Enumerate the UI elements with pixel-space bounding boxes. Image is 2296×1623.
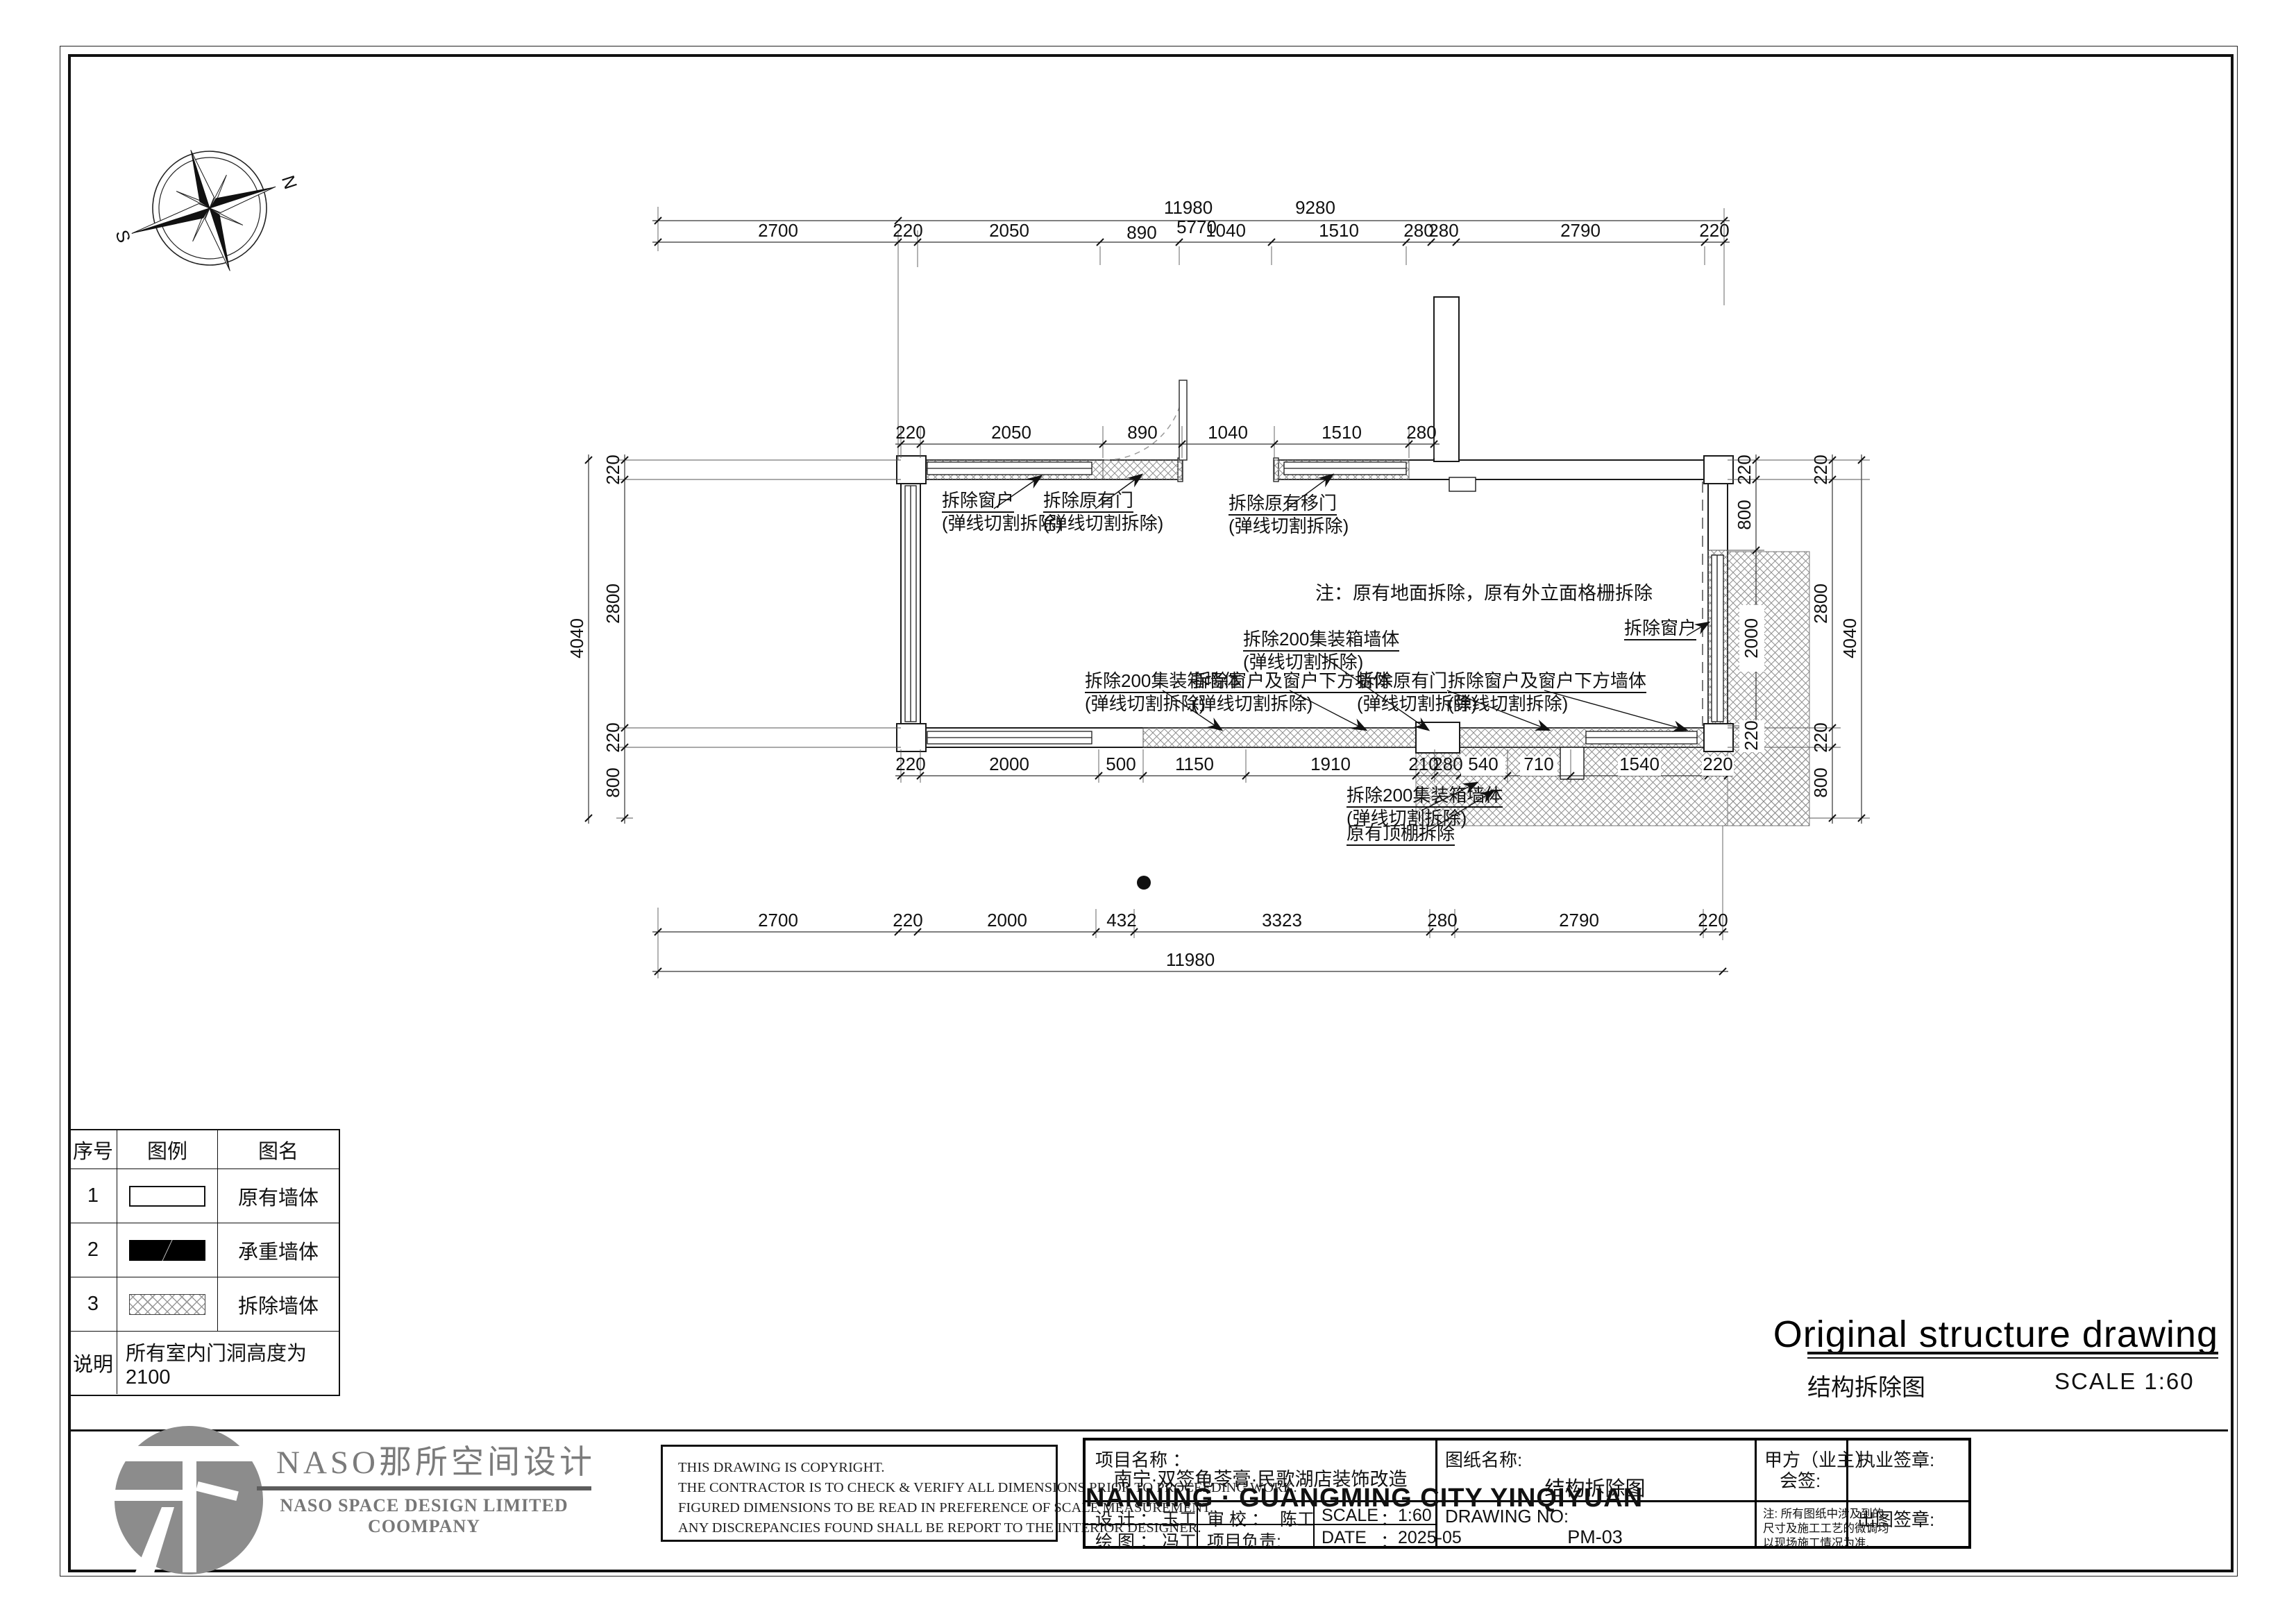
dimension-ticks [585, 217, 1865, 975]
dimension-lines [589, 221, 1862, 971]
dim: 280 [1433, 754, 1462, 774]
sheetname-value: 结构拆除图 [1435, 1472, 1755, 1502]
date-colon: ： [1381, 1528, 1398, 1553]
legend-note-value: 所有室内门洞高度为2100 [117, 1332, 339, 1394]
dim: 220 [602, 454, 623, 484]
callout-demolish-door-top: 拆除原有门(弹线切割拆除) [1043, 490, 1163, 534]
dim-overall-top: 11980 [1164, 197, 1213, 218]
copyright-line: ANY DISCREPANCIES FOUND SHALL BE REPORT … [678, 1518, 1056, 1538]
draftsman-value: 冯工 [1162, 1528, 1197, 1553]
dim: 710 [1523, 754, 1553, 774]
draftsman-label: 绘 图 ： [1095, 1528, 1157, 1553]
dim: 890 [1126, 222, 1156, 243]
legend-header-no: 序号 [69, 1130, 117, 1169]
compass-north-label: N [278, 173, 301, 192]
dim: 220 [893, 220, 922, 241]
table-line [1755, 1441, 1757, 1546]
dim: 2700 [758, 910, 798, 931]
legend-header-name: 图名 [218, 1130, 339, 1169]
legend-row-no: 1 [69, 1169, 117, 1223]
dim: 2800 [602, 584, 623, 624]
dim: 280 [1428, 220, 1458, 241]
dim: 432 [1106, 910, 1136, 931]
practice-seal-label: 执业签章: [1857, 1446, 1934, 1472]
compass-icon: N S [94, 121, 320, 302]
callout-demolish-container-wall-mid: 拆除200集装箱墙体(弹线切割拆除) [1243, 629, 1399, 672]
drawingno-label: DRAWING NO: [1445, 1506, 1569, 1527]
dim: 2700 [758, 220, 798, 241]
dim: 220 [1810, 722, 1831, 752]
dim: 220 [1703, 754, 1732, 774]
legend-swatch-demolish [117, 1277, 218, 1332]
dim: 1510 [1322, 422, 1362, 443]
drawing-title-scale: SCALE 1:60 [2054, 1368, 2195, 1395]
dim: 220 [1734, 454, 1755, 484]
dim-top-9280: 9280 [1295, 197, 1335, 218]
copyright-line: FIGURED DIMENSIONS TO BE READ IN PREFERE… [678, 1498, 1056, 1518]
callout-demolish-container-wall-bottom: 拆除200集装箱墙体(弹线切割拆除) [1347, 785, 1503, 829]
designer-label: 设 计 ： [1095, 1506, 1157, 1531]
dim: 220 [893, 910, 922, 931]
titleblock-table: 项目名称 ： 南宁·双签龟苓膏·民歌湖店装饰改造 NANNING · GUANG… [1083, 1438, 1971, 1549]
callout-demolish-window-right: 拆除窗户 [1624, 618, 1696, 640]
dimension-extension-lines [616, 207, 1870, 978]
plan-drawing: N S [0, 0, 2296, 1623]
legend-row-name: 拆除墙体 [218, 1277, 339, 1332]
dim: 220 [895, 422, 925, 443]
dimension-labels: 11980 9280 2700 220 2050 890 5770 1040 1… [566, 197, 1860, 970]
issue-seal-label: 出图签章: [1857, 1506, 1934, 1531]
legend-row-name: 原有墙体 [218, 1169, 339, 1223]
legend-swatch-original [117, 1169, 218, 1223]
dim: 1040 [1208, 422, 1248, 443]
titlebar-separator [68, 1429, 2228, 1431]
dim: 800 [1734, 500, 1755, 529]
dim: 220 [1699, 220, 1729, 241]
logo-company-zh: NASO那所空间设计 [276, 1435, 596, 1483]
drawing-title: Original structure drawing [1669, 1313, 2218, 1356]
logo-company-en: NASO SPACE DESIGN LIMITED COOMPANY [257, 1495, 591, 1537]
dim: 220 [1741, 720, 1762, 750]
owner-countersign-label: 会签: [1780, 1467, 1821, 1493]
project-manager-label: 项目负责: [1207, 1528, 1281, 1553]
dim: 2000 [989, 754, 1029, 774]
dim: 890 [1127, 422, 1157, 443]
legend-row-no: 3 [69, 1277, 117, 1332]
dim: 220 [1698, 910, 1728, 931]
drawing-title-en: Original structure drawing [1773, 1314, 2218, 1355]
dim: 2000 [1741, 618, 1762, 658]
scale-colon: ： [1381, 1506, 1398, 1531]
dim: 4040 [566, 618, 587, 658]
drawingno-value: PM-03 [1435, 1527, 1755, 1548]
sheetname-label: 图纸名称: [1445, 1446, 1522, 1472]
dim: 280 [1427, 910, 1457, 931]
dim: 220 [1810, 454, 1831, 484]
dim: 280 [1406, 422, 1436, 443]
title-underline [1807, 1357, 2218, 1359]
dim: 220 [602, 722, 623, 752]
scale-label: SCALE [1322, 1506, 1378, 1526]
title-underline [1807, 1352, 2218, 1354]
dim: 800 [1810, 767, 1831, 797]
dim: 2050 [989, 220, 1029, 241]
dim: 2790 [1560, 220, 1601, 241]
callout-demolish-sliding-door: 拆除原有移门(弹线切割拆除) [1229, 493, 1349, 536]
dim: 3323 [1262, 910, 1302, 931]
dim: 1910 [1310, 754, 1351, 774]
dim: 1510 [1319, 220, 1359, 241]
dim: 2790 [1559, 910, 1599, 931]
designer-value: 玉工 [1162, 1506, 1197, 1531]
callout-demolish-ceiling: 原有顶棚拆除 [1347, 823, 1455, 846]
dim: 500 [1106, 754, 1136, 774]
dim: 1540 [1619, 754, 1660, 774]
checker-value: 陈工 [1280, 1506, 1315, 1531]
dim: 2000 [987, 910, 1027, 931]
legend-swatch-loadbearing [117, 1223, 218, 1277]
dim: 2050 [991, 422, 1031, 443]
black-dot-marker [1137, 876, 1151, 890]
plan-general-note: 注：原有地面拆除，原有外立面格栅拆除 [1315, 578, 1653, 605]
dim: 2800 [1810, 584, 1831, 624]
drawing-title-zh: 结构拆除图 [1807, 1368, 1925, 1402]
copyright-line: THIS DRAWING IS COPYRIGHT. [678, 1458, 1056, 1478]
compass-south-label: S [111, 228, 135, 246]
date-label: DATE [1322, 1528, 1367, 1548]
owner-note-line: 以现场施工情况为准. [1763, 1533, 1869, 1550]
dim: 540 [1468, 754, 1498, 774]
dim: 220 [895, 754, 925, 774]
door-swing-symbol [1104, 380, 1187, 460]
scale-value: 1:60 [1398, 1506, 1432, 1526]
legend-row-name: 承重墙体 [218, 1223, 339, 1277]
dim: 1040 [1206, 220, 1246, 241]
dim: 4040 [1839, 618, 1860, 658]
copyright-line: THE CONTRACTOR IS TO CHECK & VERIFY ALL … [678, 1478, 1056, 1498]
callout-demolish-window-below-wall-2: 拆除窗户及窗户下方墙体(弹线切割拆除) [1448, 670, 1646, 714]
logo-divider [257, 1486, 591, 1490]
legend-note-label: 说明 [69, 1332, 117, 1394]
legend-table: 序号 图例 图名 1 原有墙体 2 承重墙体 3 拆除墙体 说明 所有室内门洞高… [68, 1129, 340, 1396]
dim-overall-bottom: 11980 [1166, 949, 1215, 970]
dim: 1150 [1175, 754, 1214, 774]
drawing-sheet: N S [0, 0, 2296, 1623]
dim: 800 [602, 767, 623, 797]
legend-row-no: 2 [69, 1223, 117, 1277]
copyright-box: THIS DRAWING IS COPYRIGHT. THE CONTRACTO… [661, 1445, 1058, 1542]
legend-header-symbol: 图例 [117, 1130, 218, 1169]
checker-label: 审 校 ： [1207, 1506, 1269, 1531]
